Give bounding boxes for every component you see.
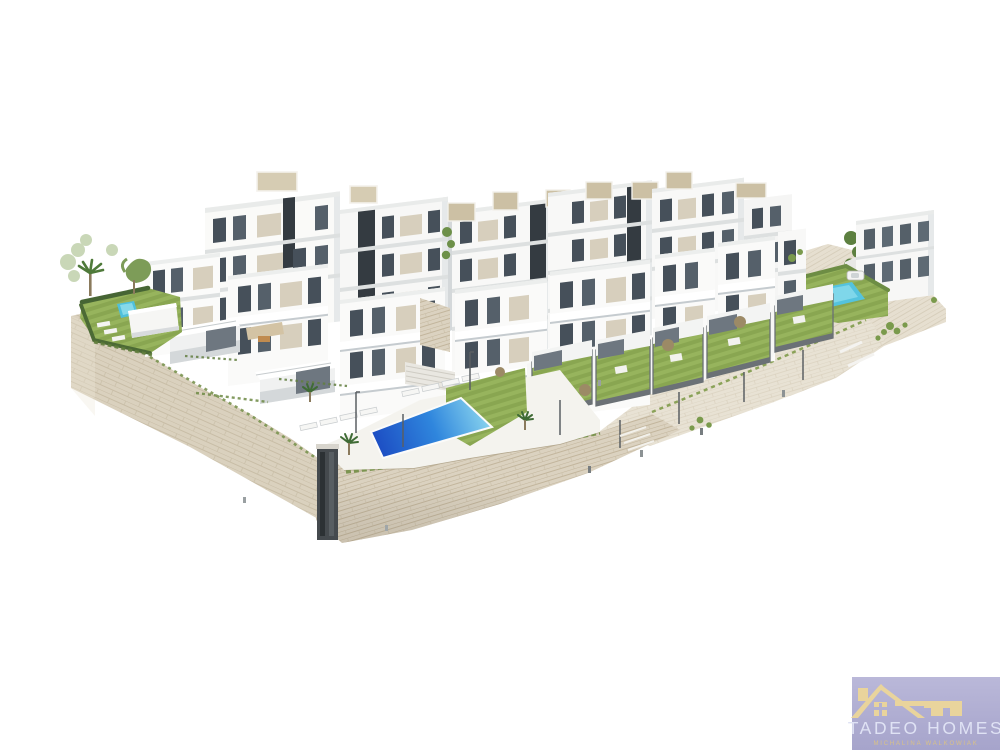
svg-text:TADEO HOMES: TADEO HOMES [848, 718, 1000, 738]
svg-text:MICHALINA WALKOWIAK: MICHALINA WALKOWIAK [874, 741, 979, 747]
